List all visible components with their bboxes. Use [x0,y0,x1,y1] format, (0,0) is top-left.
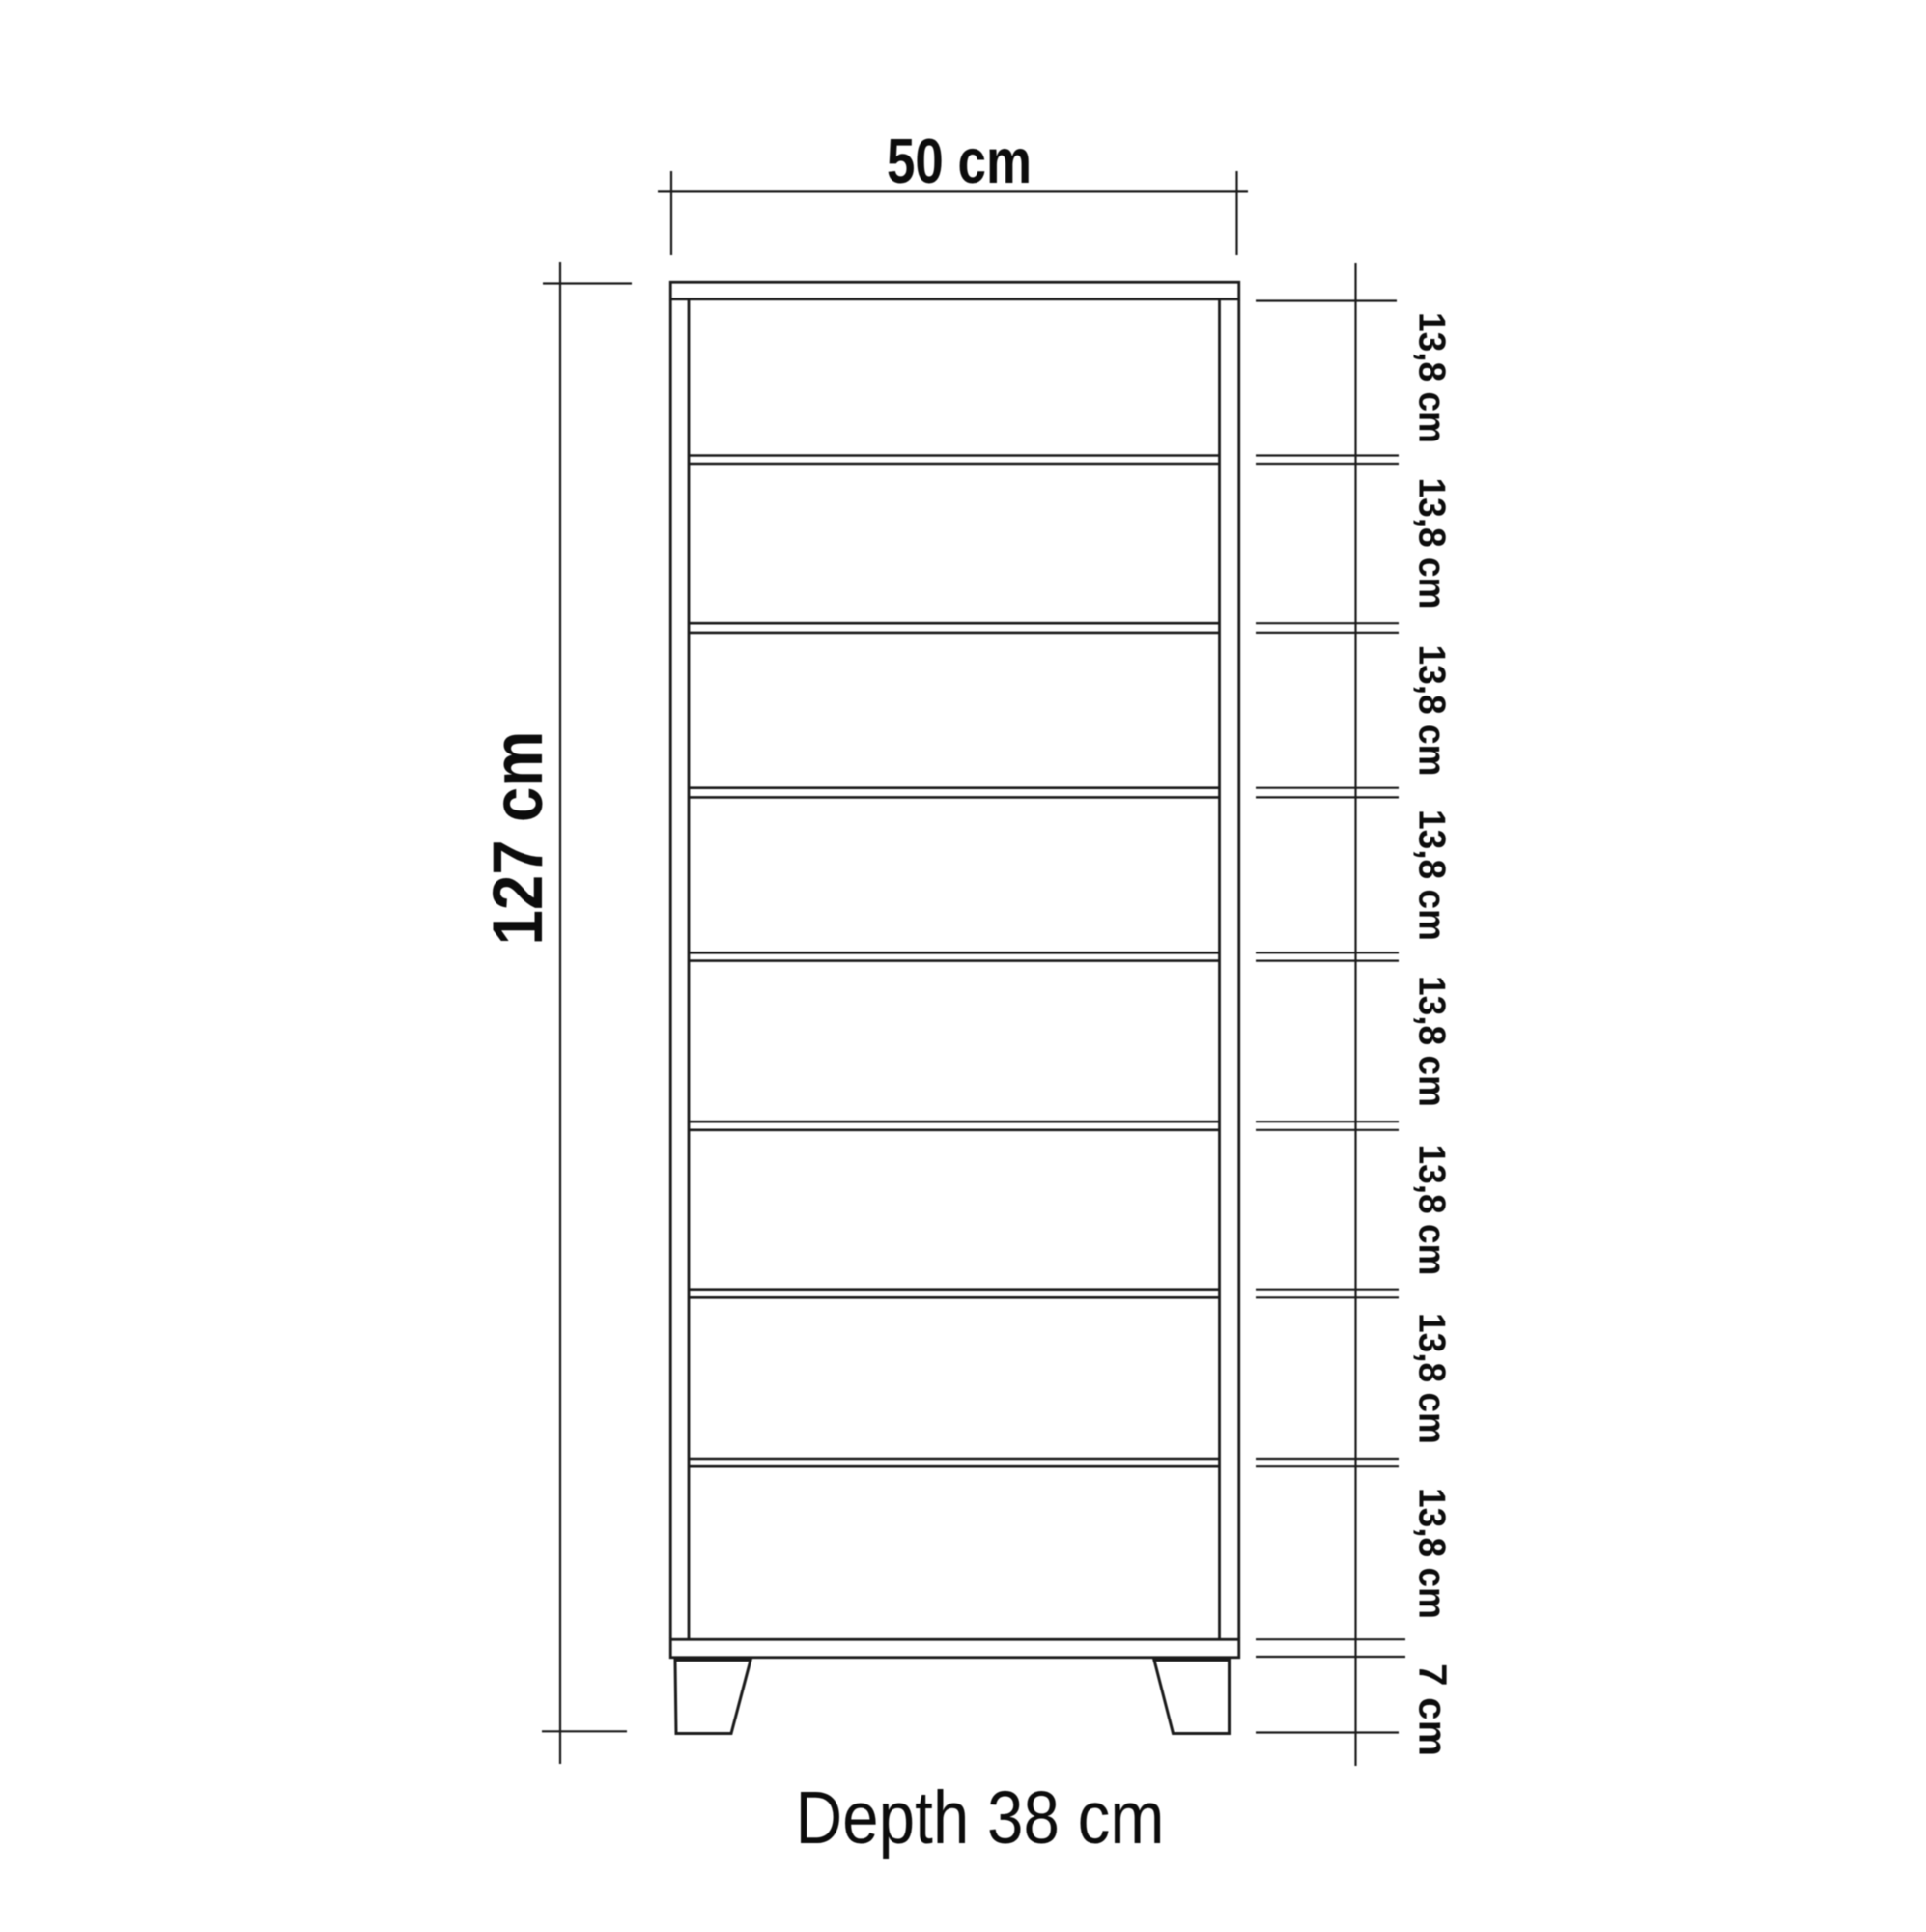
svg-text:13,8 cm: 13,8 cm [1411,1313,1453,1444]
svg-text:13,8 cm: 13,8 cm [1411,810,1453,941]
svg-text:127 cm: 127 cm [479,731,557,946]
svg-text:13,8 cm: 13,8 cm [1411,312,1453,443]
svg-text:Depth 38 cm: Depth 38 cm [796,1776,1165,1860]
svg-text:13,8 cm: 13,8 cm [1411,645,1453,777]
svg-text:13,8 cm: 13,8 cm [1411,1145,1453,1276]
svg-text:13,8 cm: 13,8 cm [1411,1488,1453,1619]
svg-text:13,8 cm: 13,8 cm [1411,976,1453,1107]
svg-text:50 cm: 50 cm [887,126,1032,196]
svg-text:7 cm: 7 cm [1411,1663,1456,1756]
svg-text:13,8 cm: 13,8 cm [1411,478,1453,610]
